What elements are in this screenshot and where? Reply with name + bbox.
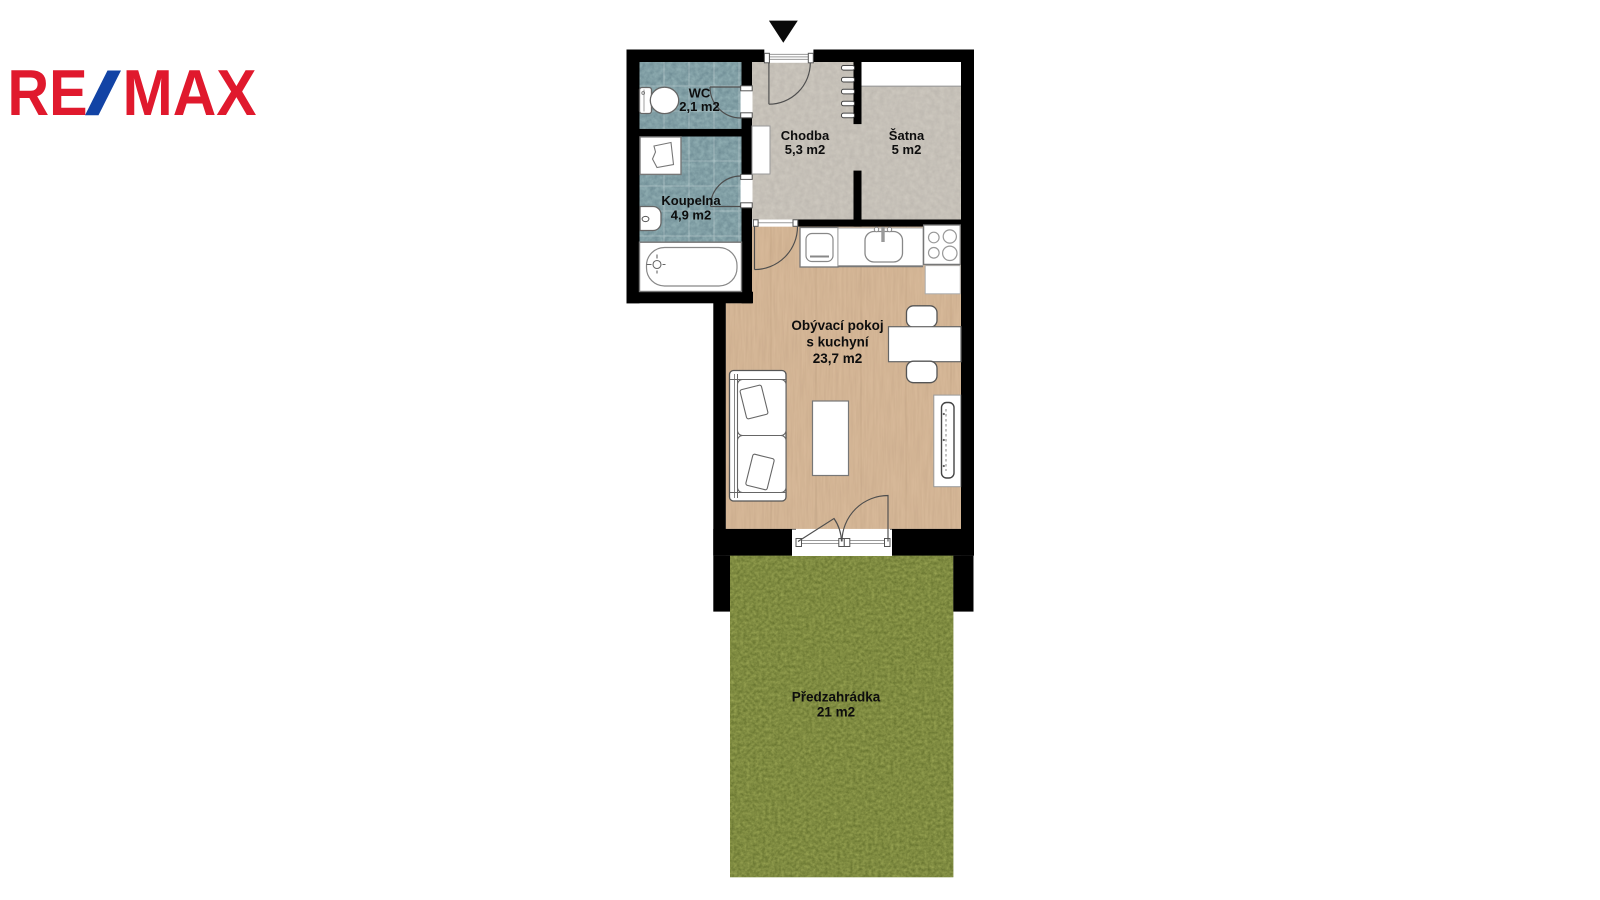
- svg-text:s kuchyní: s kuchyní: [806, 335, 870, 350]
- svg-text:5,3 m2: 5,3 m2: [785, 142, 825, 157]
- svg-text:Šatna: Šatna: [889, 128, 925, 143]
- svg-text:RE: RE: [8, 56, 88, 129]
- svg-text:Předzahrádka: Předzahrádka: [792, 690, 881, 705]
- svg-text:23,7 m2: 23,7 m2: [813, 351, 863, 366]
- svg-text:Chodba: Chodba: [781, 128, 830, 143]
- svg-text:5 m2: 5 m2: [892, 142, 922, 157]
- svg-text:MAX: MAX: [123, 56, 257, 129]
- svg-text:4,9 m2: 4,9 m2: [671, 208, 711, 223]
- svg-text:Koupelna: Koupelna: [661, 193, 721, 208]
- svg-text:2,1 m2: 2,1 m2: [679, 99, 719, 114]
- svg-text:Obývací pokoj: Obývací pokoj: [791, 318, 883, 333]
- svg-text:21 m2: 21 m2: [817, 705, 855, 720]
